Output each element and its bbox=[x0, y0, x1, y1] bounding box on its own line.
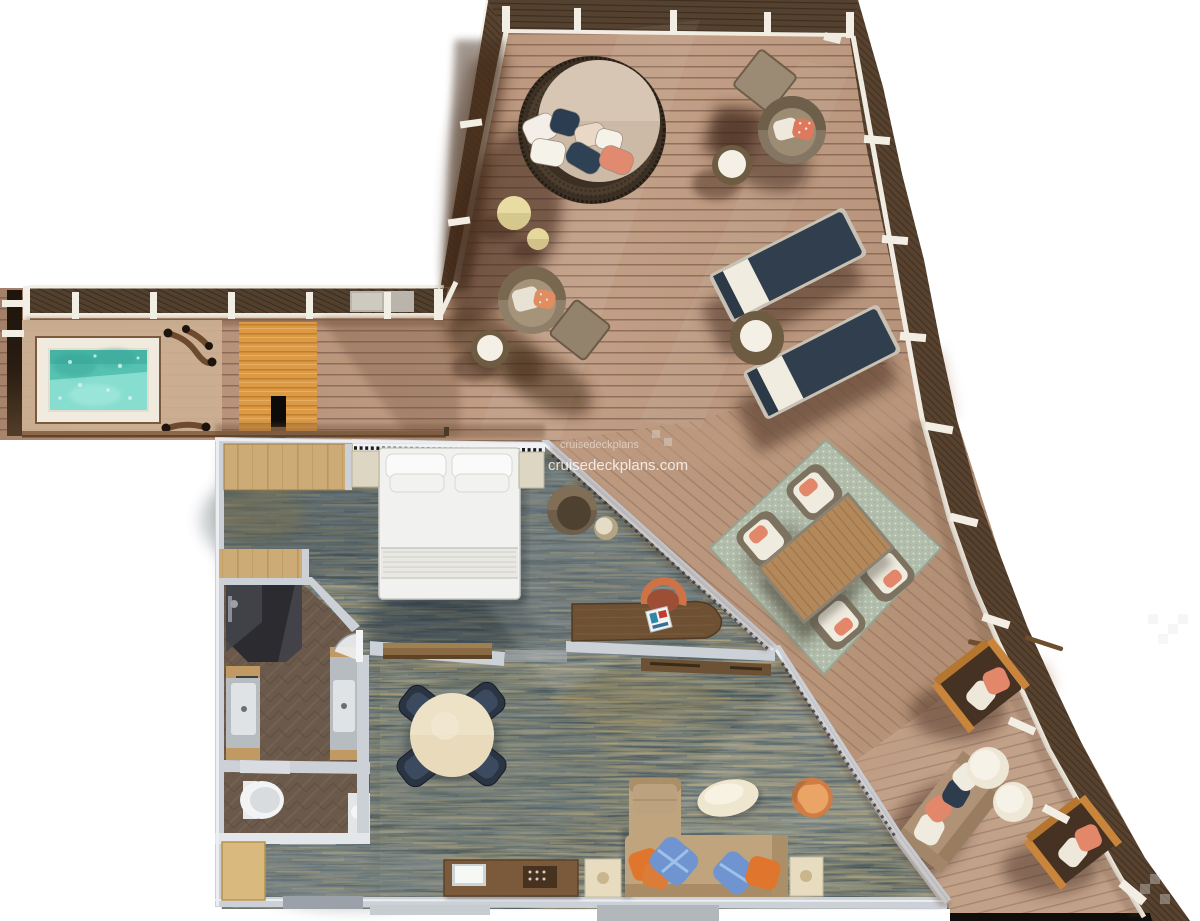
svg-text:cruisedeckplans.com: cruisedeckplans.com bbox=[548, 457, 688, 474]
svg-text:cruisedeckplans: cruisedeckplans bbox=[560, 439, 639, 451]
